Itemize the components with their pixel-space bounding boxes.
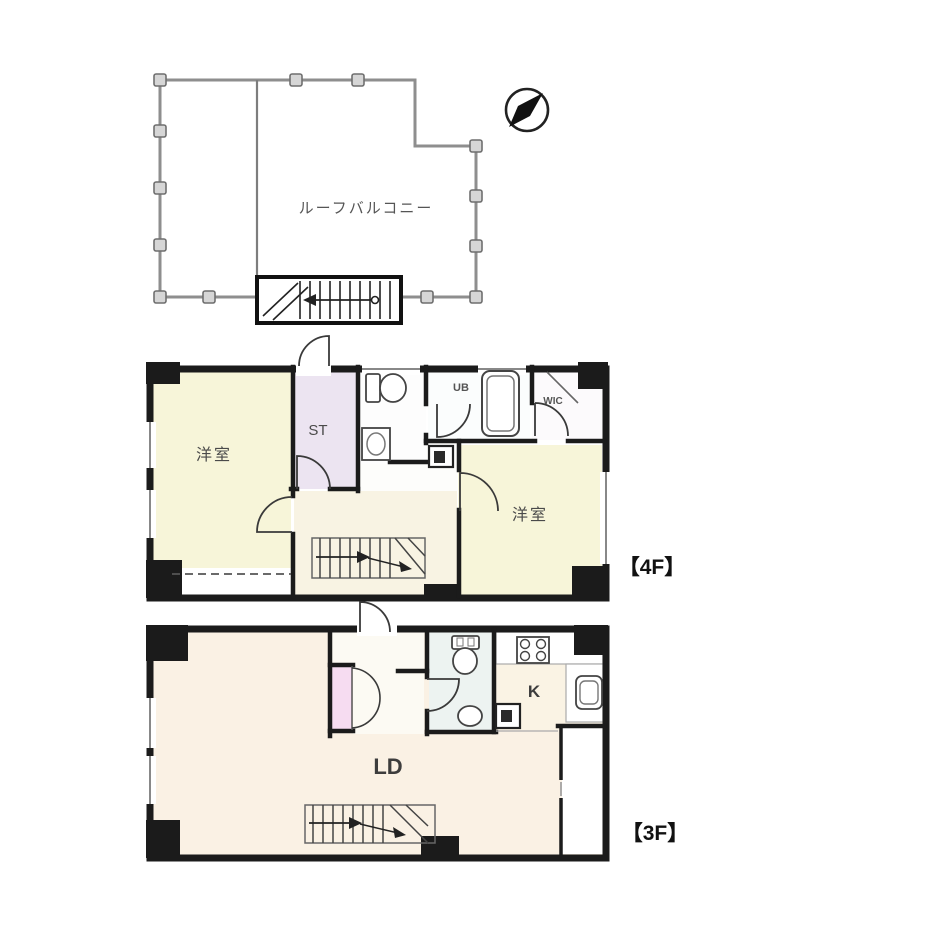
stove-icon [517,637,549,663]
floor-3f-plan: LD K 【3F】 [143,602,688,858]
roof-stairs [257,277,401,323]
round-basin-icon [458,706,482,726]
bathtub-icon [482,371,519,436]
washbasin-icon [362,428,390,460]
toilet-icon [366,374,406,402]
unit-bath-label: UB [453,382,469,394]
floorplan-canvas: ルーフバルコニー [0,0,928,942]
floor-4f-plan: 洋室 ST UB WIC 洋室 【4F】 [143,336,685,598]
balcony-floor [562,728,603,854]
railing [160,80,476,297]
floor-4f-tag: 【4F】 [619,556,686,579]
floor-3f-tag: 【3F】 [622,822,689,845]
kitchen-sink-icon [576,676,602,709]
washer-icon-4f [429,446,453,467]
wic-label: WIC [543,396,562,407]
railing-posts [154,74,482,303]
washer-icon-3f [496,704,520,728]
bedroom-right-label: 洋室 [512,506,548,524]
bedroom-left-label: 洋室 [196,446,232,464]
kitchen-label: K [528,682,541,701]
toilet-icon-3f [452,636,479,674]
living-dining-label: LD [373,754,402,779]
bedroom-left-floor [153,369,291,568]
roof-plan: ルーフバルコニー [154,74,548,323]
compass-icon [506,89,548,131]
hall-floor [294,491,457,595]
storage-label: ST [308,422,327,439]
roof-balcony-label: ルーフバルコニー [299,200,434,217]
closet-floor [331,666,352,730]
